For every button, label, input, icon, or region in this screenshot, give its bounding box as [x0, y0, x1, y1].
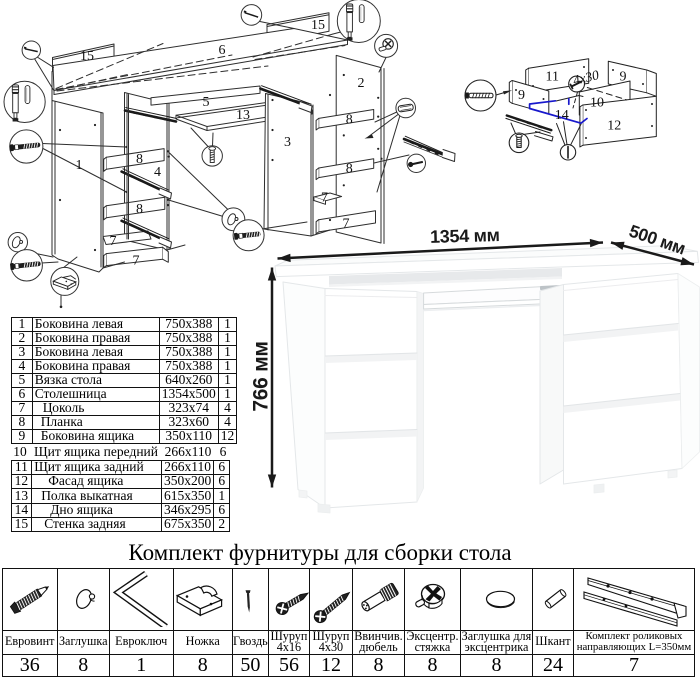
- svg-text:7: 7: [321, 191, 328, 206]
- svg-text:9: 9: [620, 69, 627, 84]
- svg-text:8: 8: [346, 162, 353, 177]
- svg-text:10: 10: [590, 96, 604, 111]
- svg-text:1: 1: [76, 158, 83, 173]
- svg-text:766 мм: 766 мм: [250, 341, 273, 411]
- svg-text:15: 15: [80, 49, 94, 64]
- svg-text:2: 2: [358, 76, 365, 91]
- svg-text:13: 13: [236, 108, 250, 123]
- svg-text:1354 мм: 1354 мм: [430, 225, 500, 247]
- svg-text:4: 4: [154, 165, 161, 180]
- svg-text:11: 11: [546, 69, 559, 84]
- svg-text:8: 8: [136, 152, 143, 167]
- svg-text:12: 12: [607, 118, 621, 133]
- svg-text:6: 6: [219, 43, 226, 58]
- svg-text:7: 7: [343, 217, 350, 232]
- svg-text:14: 14: [555, 108, 569, 123]
- svg-text:7: 7: [133, 254, 140, 269]
- svg-text:8: 8: [346, 112, 353, 127]
- svg-text:7: 7: [110, 234, 117, 249]
- svg-text:15: 15: [311, 18, 325, 33]
- svg-text:3: 3: [284, 135, 291, 150]
- svg-text:9: 9: [518, 88, 525, 103]
- svg-text:8: 8: [136, 202, 143, 217]
- svg-text:5: 5: [203, 95, 210, 110]
